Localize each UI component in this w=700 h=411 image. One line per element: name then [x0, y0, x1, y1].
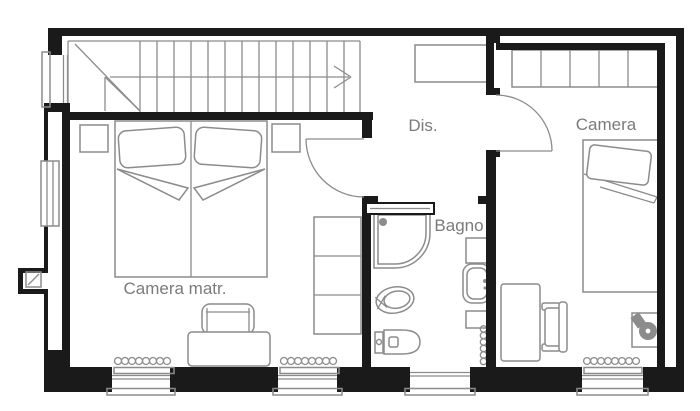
- room-label-bagno: Bagno: [434, 216, 483, 235]
- door-camera: [496, 95, 552, 151]
- floor-plan-drawing: Dis. Camera Bagno Camera matr.: [0, 0, 700, 411]
- nightstand-right: [272, 124, 300, 152]
- room-label-dis: Dis.: [408, 116, 437, 135]
- bidet: [374, 284, 416, 316]
- sliding-door-bagno: [366, 203, 434, 214]
- single-bed: [583, 140, 658, 292]
- room-label-camera: Camera: [576, 115, 637, 134]
- window-bagno: [405, 373, 475, 396]
- double-bed: [115, 121, 267, 277]
- room-label-camera-matr: Camera matr.: [124, 279, 227, 298]
- wardrobe-camera-matr: [314, 217, 361, 334]
- radiator-camera: [584, 358, 642, 374]
- door-camera-matr: [306, 139, 364, 197]
- armchair: [188, 304, 270, 366]
- flue-symbol: [26, 272, 41, 287]
- stair-direction-arrow-icon: [110, 66, 351, 88]
- window-camera-matr-2: [273, 376, 342, 396]
- floor-plan: Dis. Camera Bagno Camera matr.: [0, 0, 700, 411]
- window-camera-matr-1: [107, 376, 175, 396]
- desk: [501, 284, 540, 361]
- desk-chair: [542, 302, 567, 352]
- radiator-camera-matr-2: [280, 358, 339, 374]
- wardrobe-camera: [512, 50, 658, 87]
- window-left-lower: [41, 161, 59, 226]
- radiator-camera-matr-1: [114, 358, 174, 374]
- cabinet-dis: [415, 45, 487, 82]
- window-left-upper: [42, 52, 68, 107]
- toilet: [375, 330, 420, 354]
- radiator-bagno: [480, 326, 486, 365]
- window-camera: [577, 376, 648, 396]
- shower: [374, 211, 430, 268]
- nightstand-left: [80, 125, 108, 152]
